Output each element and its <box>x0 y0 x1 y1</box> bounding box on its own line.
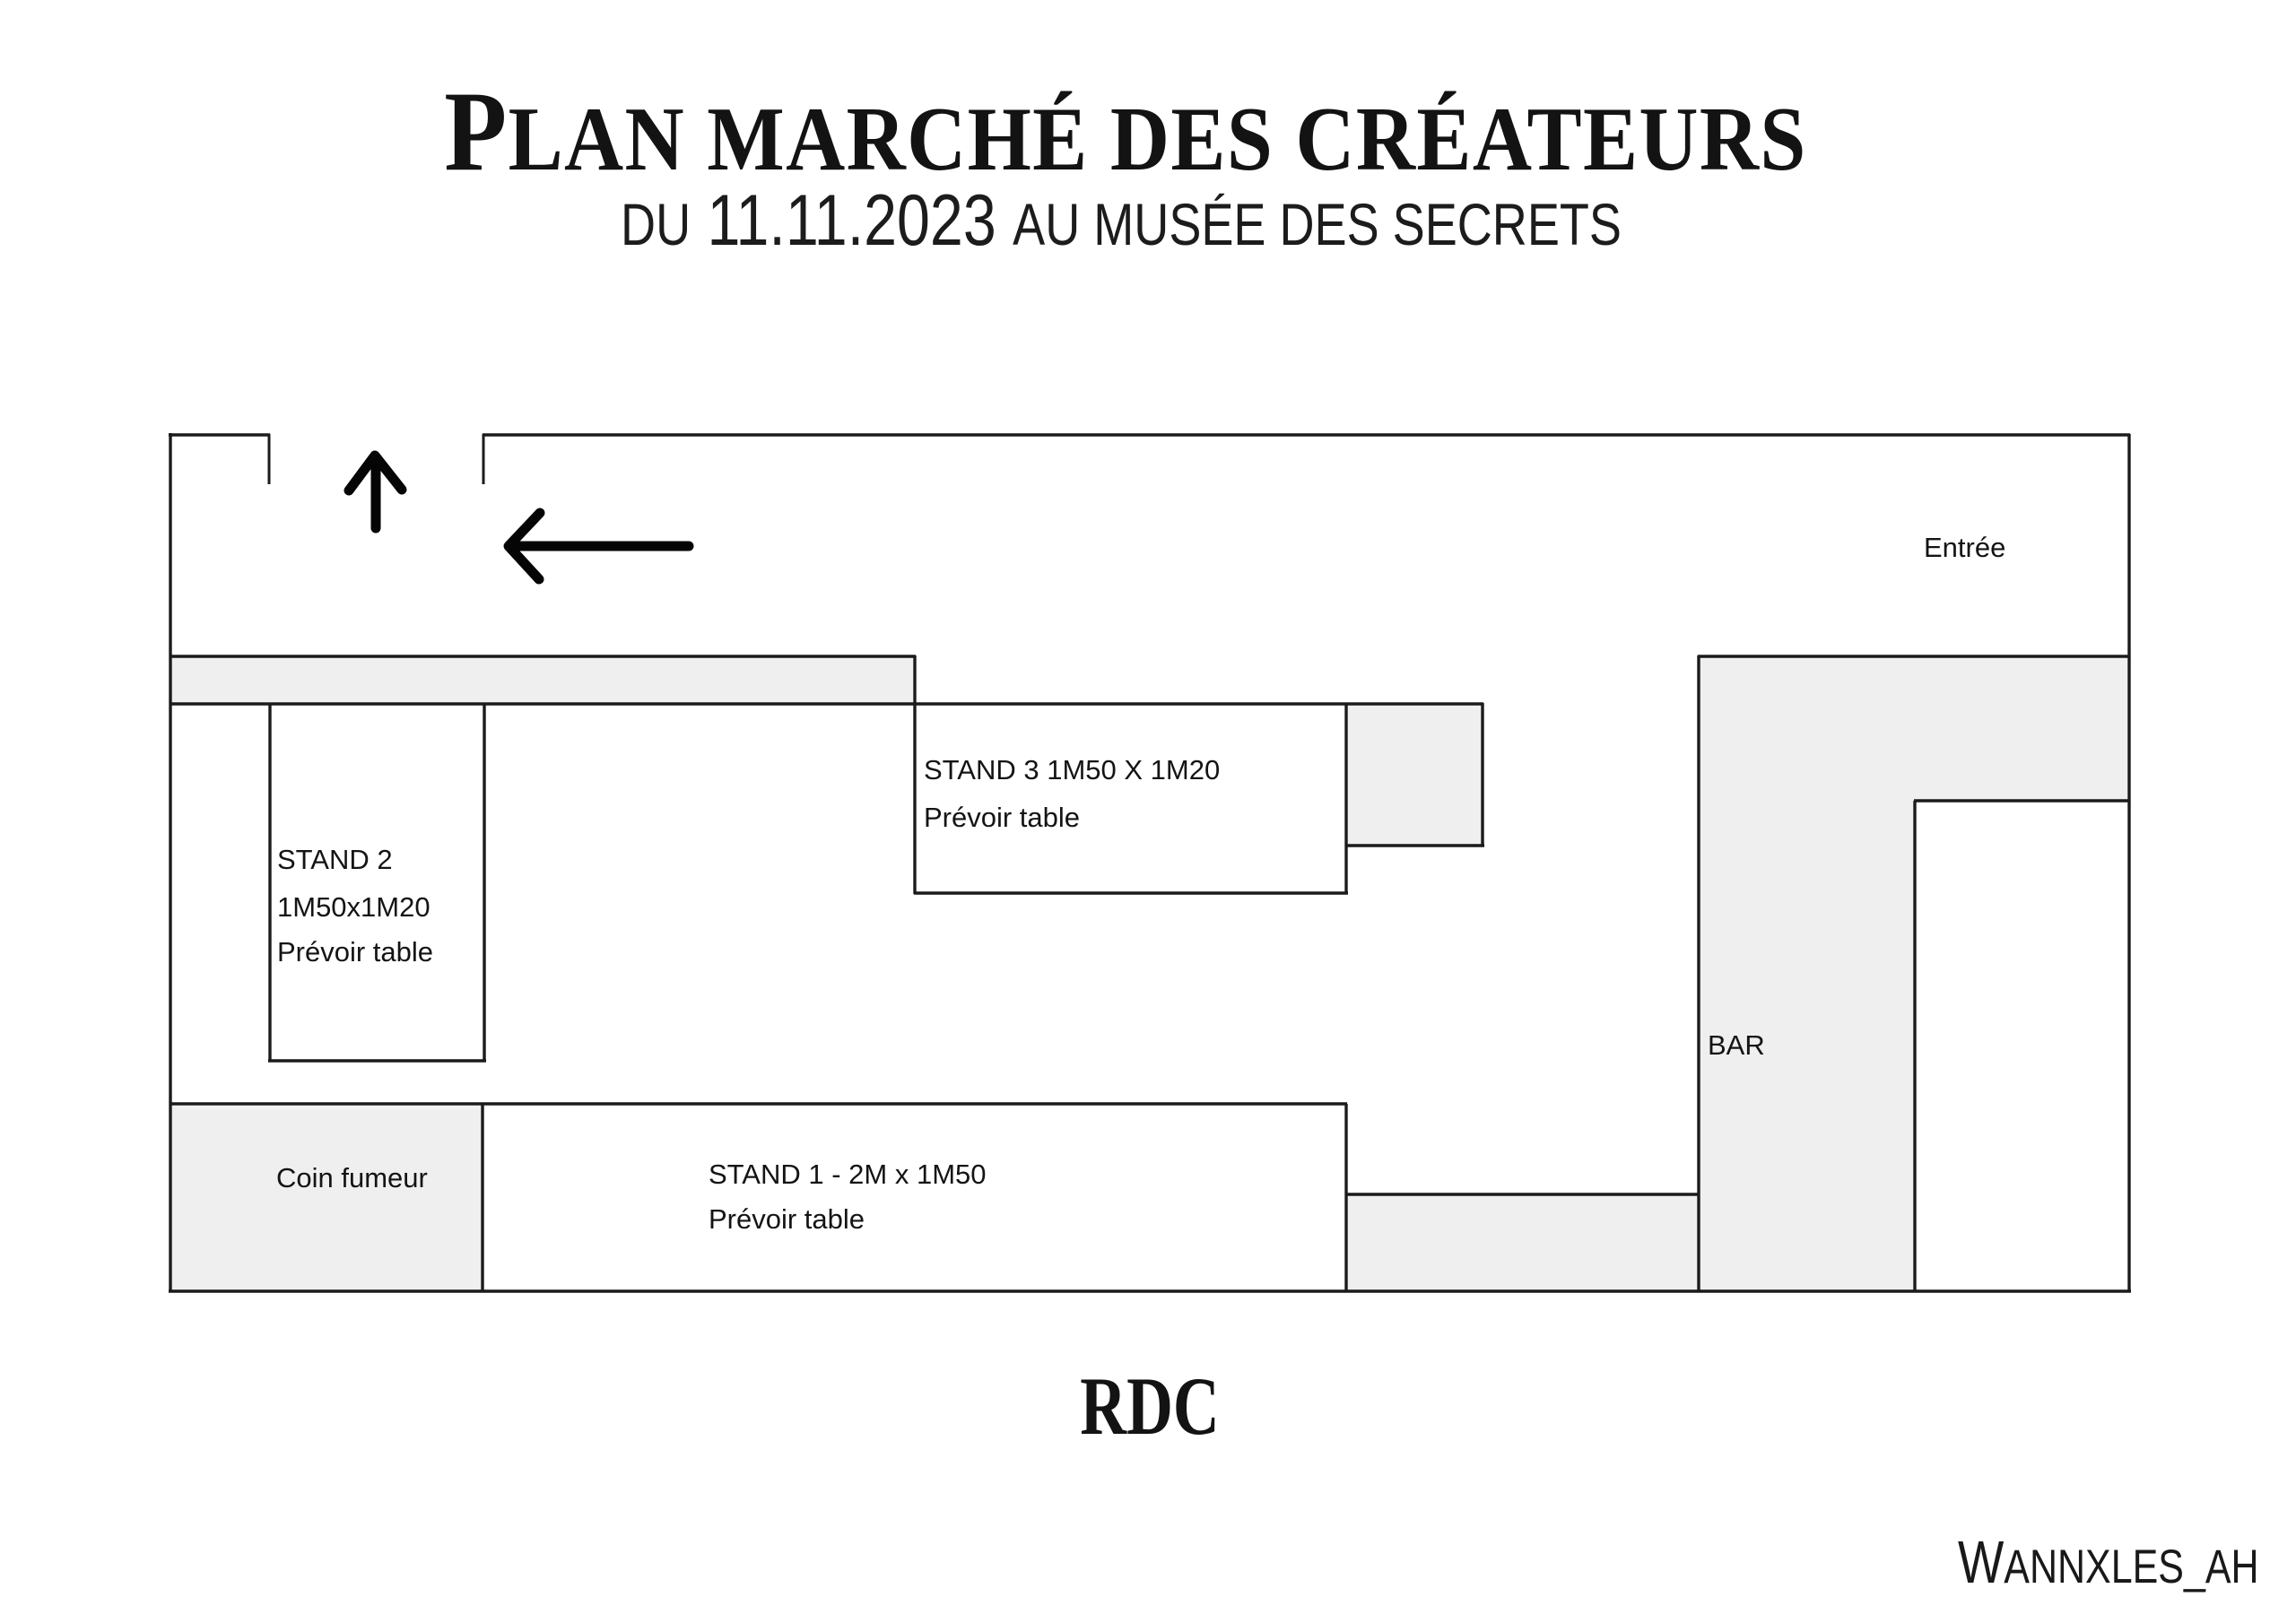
svg-text:Prévoir table: Prévoir table <box>924 802 1080 833</box>
svg-text:STAND 3 1M50 X 1M20: STAND 3 1M50 X 1M20 <box>924 754 1220 785</box>
svg-text:STAND 1 - 2M x 1M50: STAND 1 - 2M x 1M50 <box>709 1159 987 1190</box>
svg-text:Entrée: Entrée <box>1924 532 2005 563</box>
svg-text:Coin fumeur: Coin fumeur <box>276 1162 428 1193</box>
svg-text:STAND 2: STAND 2 <box>277 844 393 875</box>
svg-text:Prévoir table: Prévoir table <box>277 936 433 968</box>
svg-text:BAR: BAR <box>1708 1029 1765 1061</box>
svg-text:Prévoir table: Prévoir table <box>709 1203 865 1235</box>
svg-text:1M50x1M20: 1M50x1M20 <box>277 891 430 923</box>
